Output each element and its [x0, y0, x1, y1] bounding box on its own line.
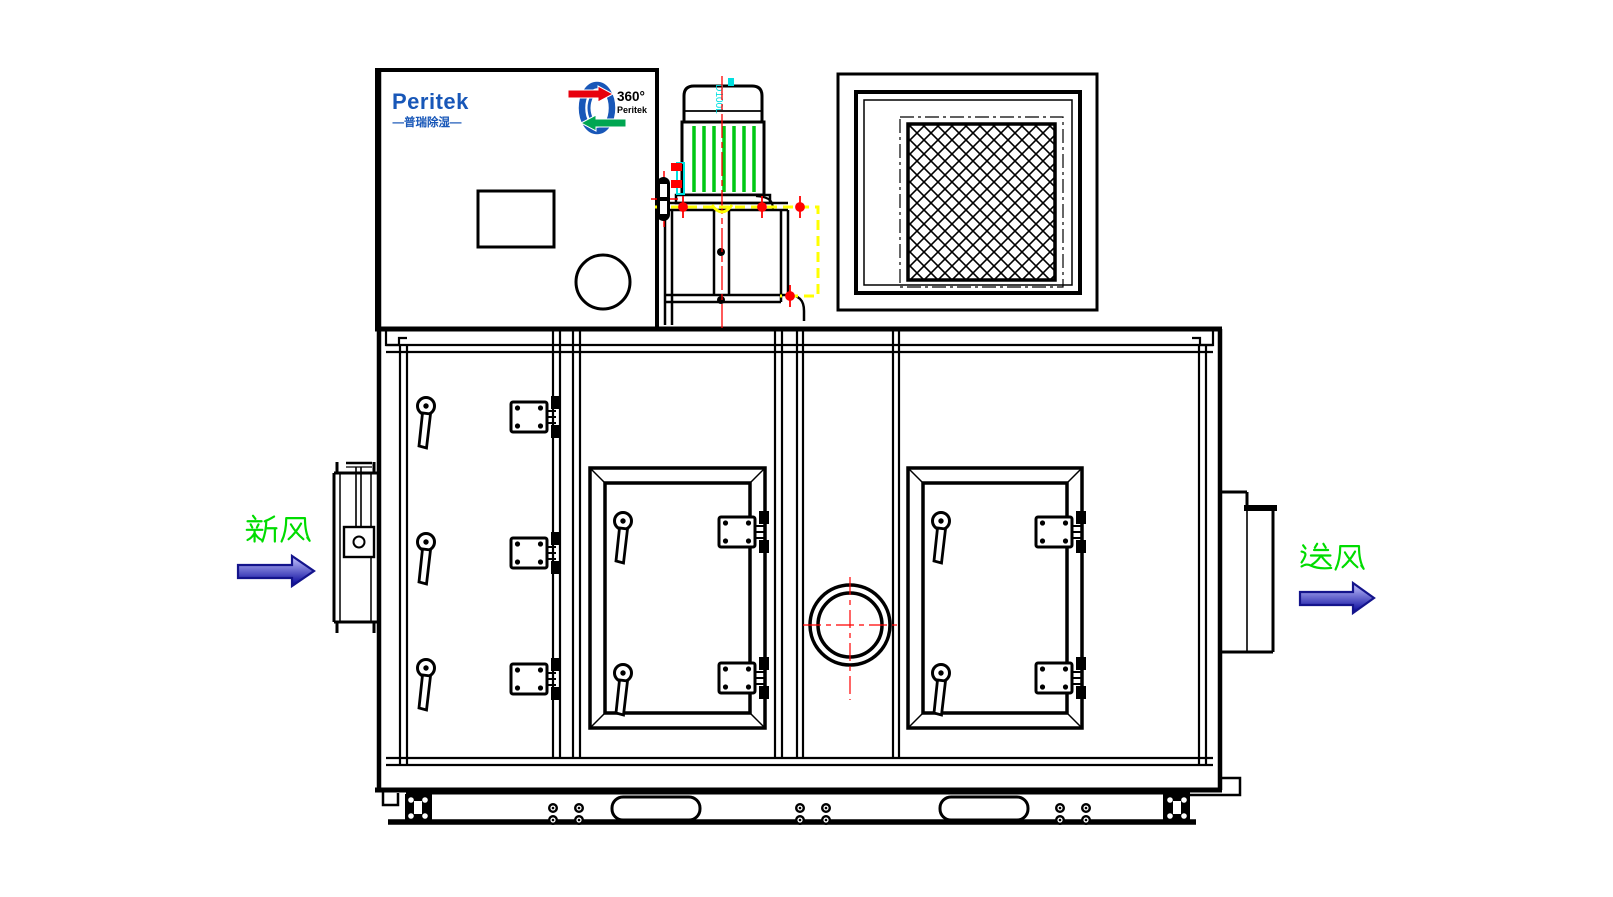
brand-tagline-text: —普瑞除湿— — [393, 115, 462, 129]
middle-access-door — [590, 468, 769, 728]
door-handle — [933, 665, 950, 716]
main-cabinet-frame — [375, 70, 1222, 790]
supply-air-label: 送风 — [1296, 538, 1364, 576]
right-access-door — [908, 468, 1086, 728]
door-handle — [418, 660, 435, 711]
base-frame — [383, 778, 1240, 824]
door-handle — [418, 398, 435, 449]
top-filter-box — [838, 74, 1097, 310]
brand-name-text: Peritek — [392, 89, 469, 114]
door-handle — [418, 534, 435, 585]
cad-drawing-page: Peritek —普瑞除湿— 360° Peritek — [0, 0, 1613, 897]
cad-drawing-canvas: Peritek —普瑞除湿— 360° Peritek — [0, 0, 1613, 897]
rotor-degree-text: 360° — [617, 89, 645, 104]
door-latch — [1036, 657, 1086, 699]
motor-fins — [694, 126, 754, 192]
supply-air-arrow — [1300, 583, 1374, 613]
outlet-duct — [1222, 492, 1277, 652]
door-handle — [933, 513, 950, 564]
inlet-duct — [334, 462, 377, 633]
base-corner-bracket-left — [405, 794, 432, 821]
door-latch — [511, 658, 561, 700]
fresh-air-label: 新风 — [238, 510, 310, 548]
door-handle — [615, 665, 632, 716]
nameplate — [478, 191, 554, 247]
peritek-logo: Peritek —普瑞除湿— — [392, 89, 469, 129]
forklift-slot — [940, 797, 1028, 820]
door-latch — [1036, 511, 1086, 553]
door-latch — [719, 511, 769, 553]
door-handle — [615, 513, 632, 564]
sight-hole — [576, 255, 630, 309]
inlet-damper-handle — [344, 463, 374, 557]
door-latch — [719, 657, 769, 699]
porthole — [803, 577, 897, 700]
rotor-logo: 360° Peritek — [568, 85, 648, 131]
door-latch — [511, 532, 561, 574]
left-access-panel — [418, 396, 562, 710]
belt-guard-outline — [655, 205, 818, 296]
base-corner-bracket-right — [1163, 794, 1190, 821]
filter-mesh — [908, 124, 1055, 280]
fresh-air-arrow — [238, 556, 314, 586]
rotor-brand-text: Peritek — [617, 105, 648, 115]
forklift-slot — [612, 797, 700, 820]
door-latch — [511, 396, 561, 438]
bolt-marks — [679, 196, 804, 307]
